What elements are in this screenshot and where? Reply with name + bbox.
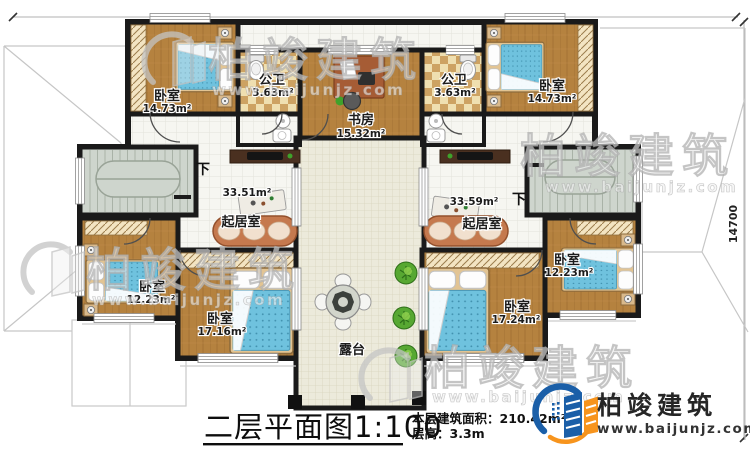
window-icon (419, 268, 428, 330)
stairs-down-label: 下 (512, 192, 526, 208)
title-block: 二层平面图1:100 本层建筑面积：210.42m² 层高：3.3m (203, 410, 566, 445)
svg-text:www.baijunjz.com: www.baijunjz.com (92, 291, 285, 309)
plant-icon (395, 262, 417, 284)
room-label: 卧室 (539, 78, 565, 94)
tv-cabinet-right (440, 150, 510, 163)
room-label: 卧室 (554, 252, 580, 268)
svg-text:柏竣建筑: 柏竣建筑 (424, 341, 640, 395)
nightstand-icon (487, 27, 501, 39)
wardrobe-icon (577, 221, 633, 235)
window-icon (198, 354, 278, 363)
window-icon (634, 244, 643, 294)
logo-name: 柏竣建筑 (597, 391, 717, 420)
wardrobe-icon (578, 25, 593, 111)
tv-cabinet-left (230, 150, 300, 163)
room-label: 卧室 (504, 299, 530, 315)
nightstand-icon (621, 293, 635, 305)
plan-title: 二层平面图1:100 (204, 410, 443, 444)
nightstand-icon (487, 95, 501, 107)
window-icon (446, 46, 474, 55)
room-label: 公卫 (441, 73, 467, 88)
window-icon (76, 158, 85, 204)
svg-text:柏竣建筑: 柏竣建筑 (86, 243, 302, 297)
nightstand-icon (621, 234, 635, 246)
wardrobe-icon (426, 253, 539, 268)
window-icon (150, 14, 210, 23)
room-area: 17.24m² (492, 314, 541, 326)
window-icon (419, 168, 428, 226)
room-area: 14.73m² (143, 103, 192, 115)
watermark: 柏竣建筑 www.baijunjz.com (23, 243, 302, 309)
room-area: 14.73m² (528, 93, 577, 105)
room-label: 书房 (348, 112, 374, 128)
stairs-down-label: 下 (196, 162, 210, 178)
bed-icon (486, 42, 544, 92)
tv-icon (457, 152, 493, 160)
column-icon (288, 395, 302, 409)
svg-text:柏竣建筑: 柏竣建筑 (520, 129, 736, 183)
room-area: 3.63m² (434, 87, 476, 99)
room-label: 卧室 (207, 311, 233, 327)
tv-icon (247, 152, 283, 160)
window-icon (94, 314, 154, 323)
floor-plan-page: 27750 14700 (0, 0, 750, 451)
svg-text:www.baijunjz.com: www.baijunjz.com (545, 178, 738, 196)
room-area: 33.59m² (450, 196, 499, 208)
room-area: 15.32m² (337, 128, 386, 140)
room-label: 卧室 (154, 88, 180, 104)
svg-text:柏竣建筑: 柏竣建筑 (208, 33, 424, 87)
laundry-icon (273, 129, 291, 142)
room-area: 17.16m² (198, 326, 247, 338)
floor-plan-canvas: 27750 14700 (0, 0, 750, 451)
window-icon (292, 168, 301, 226)
room-area: 12.23m² (545, 267, 594, 279)
floor-area-note: 本层建筑面积：210.42m² (412, 411, 566, 426)
floor-height-note: 层高：3.3m (412, 426, 485, 441)
title-underline (203, 443, 403, 445)
window-icon (560, 311, 616, 320)
room-label: 起居室 (461, 216, 501, 232)
stairwell-left (80, 147, 196, 215)
window-icon (505, 14, 565, 23)
svg-text:www.baijunjz.com: www.baijunjz.com (212, 81, 405, 99)
room-label: 起居室 (220, 214, 260, 230)
bay-roof-bottom-left (72, 320, 186, 406)
dimension-height-label: 14700 (727, 205, 740, 244)
room-area: 33.51m² (223, 187, 272, 199)
laundry-icon (427, 129, 445, 142)
logo-website: www.baijunjz.com (597, 421, 750, 437)
wardrobe-icon (85, 221, 147, 235)
room-label: 露台 (339, 342, 365, 358)
column-icon (351, 395, 365, 409)
watermark: 柏竣建筑 www.baijunjz.com (520, 129, 738, 196)
plant-icon (393, 307, 415, 329)
